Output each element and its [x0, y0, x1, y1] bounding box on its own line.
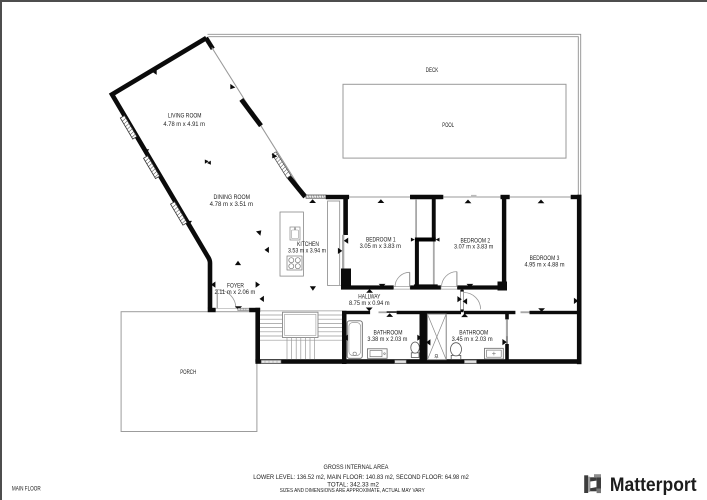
svg-text:4.95 m x 4.88 m: 4.95 m x 4.88 m — [525, 262, 565, 269]
svg-text:4.78 m x 3.51 m: 4.78 m x 3.51 m — [210, 201, 253, 208]
svg-text:3.45 m x 2.03 m: 3.45 m x 2.03 m — [452, 336, 493, 343]
svg-text:8.75 m x 0.94 m: 8.75 m x 0.94 m — [349, 300, 390, 307]
svg-text:2.11 m x 2.06 m: 2.11 m x 2.06 m — [214, 289, 255, 296]
svg-text:LOWER LEVEL: 136.52 m2, MAIN F: LOWER LEVEL: 136.52 m2, MAIN FLOOR: 140.… — [253, 474, 469, 481]
svg-text:Matterport: Matterport — [610, 475, 697, 496]
svg-text:PORCH: PORCH — [180, 369, 196, 376]
svg-text:4.78 m x 4.91 m: 4.78 m x 4.91 m — [163, 121, 205, 128]
svg-text:MAIN FLOOR: MAIN FLOOR — [12, 487, 41, 493]
svg-text:POOL: POOL — [442, 122, 454, 129]
svg-text:3.38 m x 2.03 m: 3.38 m x 2.03 m — [367, 336, 407, 343]
svg-text:LIVING ROOM: LIVING ROOM — [168, 113, 202, 120]
svg-text:DINING ROOM: DINING ROOM — [214, 194, 251, 201]
svg-text:SIZES AND DIMENSIONS ARE APPRO: SIZES AND DIMENSIONS ARE APPROXIMATE, AC… — [280, 488, 426, 494]
svg-text:3.05 m x 3.83 m: 3.05 m x 3.83 m — [360, 243, 401, 250]
svg-text:3.53 m x 3.94 m: 3.53 m x 3.94 m — [288, 247, 326, 254]
svg-text:GROSS INTERNAL AREA: GROSS INTERNAL AREA — [324, 464, 389, 471]
svg-text:DECK: DECK — [426, 67, 439, 74]
svg-text:3.07 m x 3.83 m: 3.07 m x 3.83 m — [454, 244, 493, 251]
